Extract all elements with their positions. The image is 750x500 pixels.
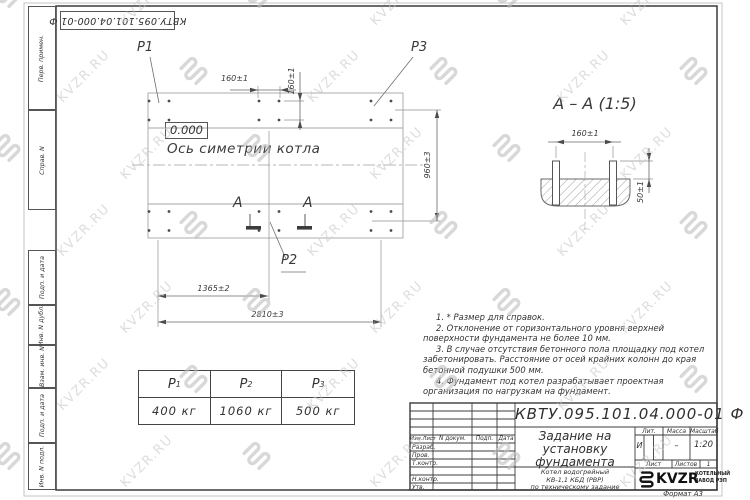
dim-section-width: 160±1 bbox=[562, 130, 608, 138]
drawing-title-line1: Задание на bbox=[517, 430, 633, 442]
load-value-p3: 500 кг bbox=[282, 398, 354, 424]
note-2: 2. Отклонение от горизонтального уровня … bbox=[423, 323, 715, 344]
section-mark-a-right: A bbox=[303, 196, 313, 210]
drawing-subtitle-line1: Котел водогрейный bbox=[517, 469, 633, 476]
elevation-mark: 0.000 bbox=[165, 122, 208, 139]
load-point-p2-label: P2 bbox=[281, 254, 297, 267]
load-value-p2: 1060 кг bbox=[211, 398, 283, 424]
margin-box-podp-data-2: Подп. и дата bbox=[28, 388, 56, 443]
note-3: 3. В случае отсутствия бетонного пола пл… bbox=[423, 344, 715, 376]
tb-row-razrab: Разраб. bbox=[412, 445, 436, 451]
drawing-subtitle-line3: по техническому задание bbox=[517, 484, 633, 491]
load-point-p3-label: P3 bbox=[411, 41, 427, 54]
tb-sheet-label: Лист bbox=[635, 462, 672, 468]
tb-col-podp: Подп. bbox=[472, 437, 497, 443]
foundation-plan-outline bbox=[148, 93, 403, 238]
tb-col-n-dokum: N докум. bbox=[433, 437, 472, 443]
anchor-bolt bbox=[610, 161, 617, 205]
tb-sheets-value: 1 bbox=[700, 462, 717, 468]
tb-row-tkontr: Т.контр. bbox=[412, 461, 438, 467]
doc-number-stamp: КВТУ.095.101.04.000-01 Ф bbox=[60, 11, 175, 30]
company-name-line2: ЗАВОД РЭП bbox=[695, 480, 727, 485]
leader-lines bbox=[150, 57, 413, 272]
kvzr-logo-text: KVZR bbox=[656, 472, 699, 486]
margin-label: Подп. и дата bbox=[39, 256, 46, 299]
margin-label: Инв. N дубл. bbox=[39, 304, 46, 345]
section-mark-a-left: A bbox=[233, 196, 243, 210]
load-point-p1-label: P1 bbox=[137, 41, 153, 54]
format-label: Формат А3 bbox=[650, 491, 716, 498]
dim-mid-span: 1365±2 bbox=[186, 285, 241, 293]
tb-lit-label: Лит. bbox=[635, 429, 663, 435]
tb-scale-value: 1:20 bbox=[690, 441, 717, 450]
load-table-header-p3: P3 bbox=[282, 371, 354, 398]
drawing-sheet: КВТУ.095.101.04.000-01 Ф Перв. примен. С… bbox=[0, 0, 750, 500]
tb-col-izm-list: Изм.Лист bbox=[410, 437, 433, 442]
tb-mass-value: – bbox=[663, 442, 690, 450]
dim-section-height: 50±1 bbox=[637, 172, 645, 212]
tb-mass-label: Масса bbox=[663, 429, 690, 435]
load-table: P1 P2 P3 400 кг 1060 кг 500 кг bbox=[138, 370, 355, 425]
tb-col-data: Дата bbox=[497, 437, 515, 443]
margin-box-inv-podl: Инв. N подл. bbox=[28, 443, 56, 490]
load-value-p1: 400 кг bbox=[139, 398, 211, 424]
margin-box-perv-primen: Перв. примен. bbox=[28, 6, 56, 110]
tb-row-nkontr: Н.контр. bbox=[412, 477, 439, 483]
section-cut-marks bbox=[246, 214, 312, 230]
anchor-bolt-dots bbox=[148, 100, 393, 232]
anchor-bolt bbox=[553, 161, 560, 205]
doc-number-stamp-text: КВТУ.095.101.04.000-01 Ф bbox=[49, 15, 186, 26]
margin-label: Перв. примен. bbox=[39, 34, 46, 81]
dim-total-span: 2810±3 bbox=[240, 311, 295, 319]
margin-box-sprav-n: Справ. N bbox=[28, 110, 56, 210]
tb-row-utv: Утв. bbox=[412, 485, 425, 491]
tb-row-prov: Пров. bbox=[412, 453, 429, 459]
company-name-line1: КОТЕЛЬНЫЙ bbox=[695, 473, 730, 478]
title-block-doc-number: КВТУ.095.101.04.000-01 Ф bbox=[515, 407, 717, 422]
dim-bolt-spacing-y: 160±1 bbox=[288, 61, 296, 101]
note-4: 4. Фундамент под котел разрабатывает про… bbox=[423, 376, 715, 397]
load-table-header-p2: P2 bbox=[211, 371, 283, 398]
margin-box-inv-dubl: Инв. N дубл. bbox=[28, 305, 56, 345]
drawing-linework bbox=[0, 0, 750, 500]
symmetry-axis-label: Ось симетрии котла bbox=[167, 143, 320, 157]
load-table-header-p1: P1 bbox=[139, 371, 211, 398]
section-view-title: A – A (1:5) bbox=[542, 96, 648, 112]
margin-label: Справ. N bbox=[39, 146, 46, 175]
note-1: 1. * Размер для справок. bbox=[423, 312, 715, 323]
drawing-title-line3: фундамента bbox=[517, 456, 633, 468]
margin-label: Инв. N подл. bbox=[39, 446, 46, 488]
margin-box-vzam-inv: Взам. инв. N bbox=[28, 345, 56, 388]
margin-label: Подп. и дата bbox=[39, 394, 46, 437]
drawing-title-line2: установку bbox=[517, 443, 633, 455]
margin-label: Взам. инв. N bbox=[39, 346, 46, 387]
tb-scale-label: Масштаб bbox=[690, 429, 717, 435]
dim-plan-height: 960±3 bbox=[424, 145, 432, 185]
tb-lit-value: И bbox=[635, 442, 644, 450]
margin-box-podp-data-1: Подп. и дата bbox=[28, 250, 56, 305]
technical-notes: 1. * Размер для справок. 2. Отклонение о… bbox=[423, 312, 715, 397]
dim-bolt-spacing-x: 160±1 bbox=[221, 75, 248, 83]
tb-sheets-label: Листов bbox=[672, 462, 700, 468]
